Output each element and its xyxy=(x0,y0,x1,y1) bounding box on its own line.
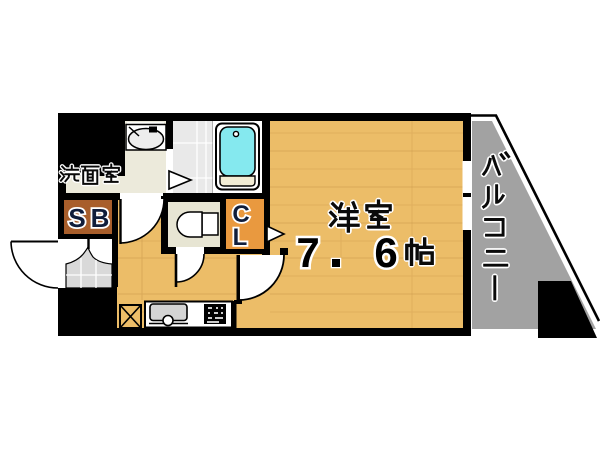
svg-text:B: B xyxy=(91,203,110,233)
svg-text:7: 7 xyxy=(296,229,319,276)
svg-text:L: L xyxy=(233,224,248,251)
svg-text:S: S xyxy=(68,203,85,233)
svg-text:6: 6 xyxy=(374,229,397,276)
